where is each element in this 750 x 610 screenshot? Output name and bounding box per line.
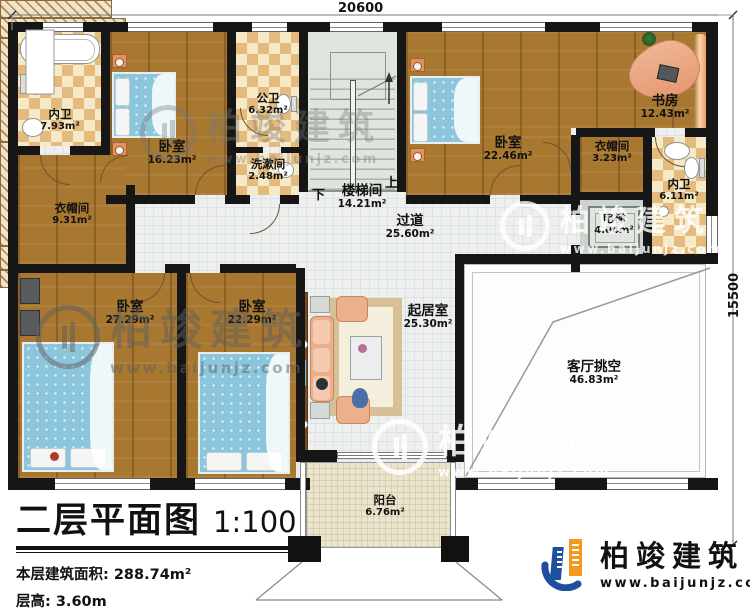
stair-down-label: 下 — [312, 184, 325, 203]
floor-height-line: 层高: 3.60m — [16, 590, 308, 610]
brand-logo: 柏竣建筑 www.baijunjz.com — [538, 533, 750, 591]
room-label-shufang: 书房12.43m² — [641, 94, 690, 121]
room-label-qijushi: 起居室25.30m² — [404, 304, 453, 331]
floor-area-line: 本层建筑面积: 288.74m² — [16, 563, 308, 584]
plan-scale: 1:100 — [213, 505, 297, 539]
stair-up-label: 上 — [385, 172, 398, 191]
room-label-guodao: 过道25.60m² — [386, 214, 435, 241]
room-label-loutijian: 楼梯间14.21m² — [338, 184, 387, 211]
room-label-bedroom-2729: 卧室27.29m² — [106, 300, 155, 327]
title-block: 二层平面图 1:100 本层建筑面积: 288.74m² 层高: 3.60m — [16, 492, 308, 610]
floor-plan: 20600 15500 内卫7.93m² 卧室16.23m² 公卫6.32m² … — [0, 0, 750, 610]
dimension-width: 20600 — [338, 1, 383, 16]
brand-name: 柏竣建筑 — [600, 533, 750, 575]
room-label-neiwei-top: 内卫7.93m² — [40, 108, 79, 132]
room-label-yimaojian-left: 衣帽间9.31m² — [52, 202, 91, 226]
brand-logo-icon — [538, 533, 592, 591]
room-label-xishujian: 洗漱间2.48m² — [248, 158, 287, 182]
room-label-bedroom-16: 卧室16.23m² — [148, 140, 197, 167]
title-rule — [16, 546, 308, 550]
room-label-neiwei-right: 内卫6.11m² — [659, 178, 698, 202]
brand-website: www.baijunjz.com — [600, 576, 750, 591]
page-title: 二层平面图 — [16, 492, 201, 543]
title-rule-thin — [16, 552, 308, 553]
room-label-bedroom-2246: 卧室22.46m² — [484, 136, 533, 163]
room-label-dianti: 电梯4.04m² — [594, 212, 633, 236]
room-label-bedroom-2229: 卧室22.29m² — [228, 300, 277, 327]
dimension-height: 15500 — [727, 273, 742, 318]
room-label-yangtai: 阳台6.76m² — [365, 494, 404, 518]
room-label-tiaokong: 客厅挑空46.83m² — [567, 360, 621, 387]
room-label-yimaojian-small: 衣帽间3.23m² — [592, 140, 631, 164]
room-label-gongwei: 公卫6.32m² — [248, 92, 287, 116]
